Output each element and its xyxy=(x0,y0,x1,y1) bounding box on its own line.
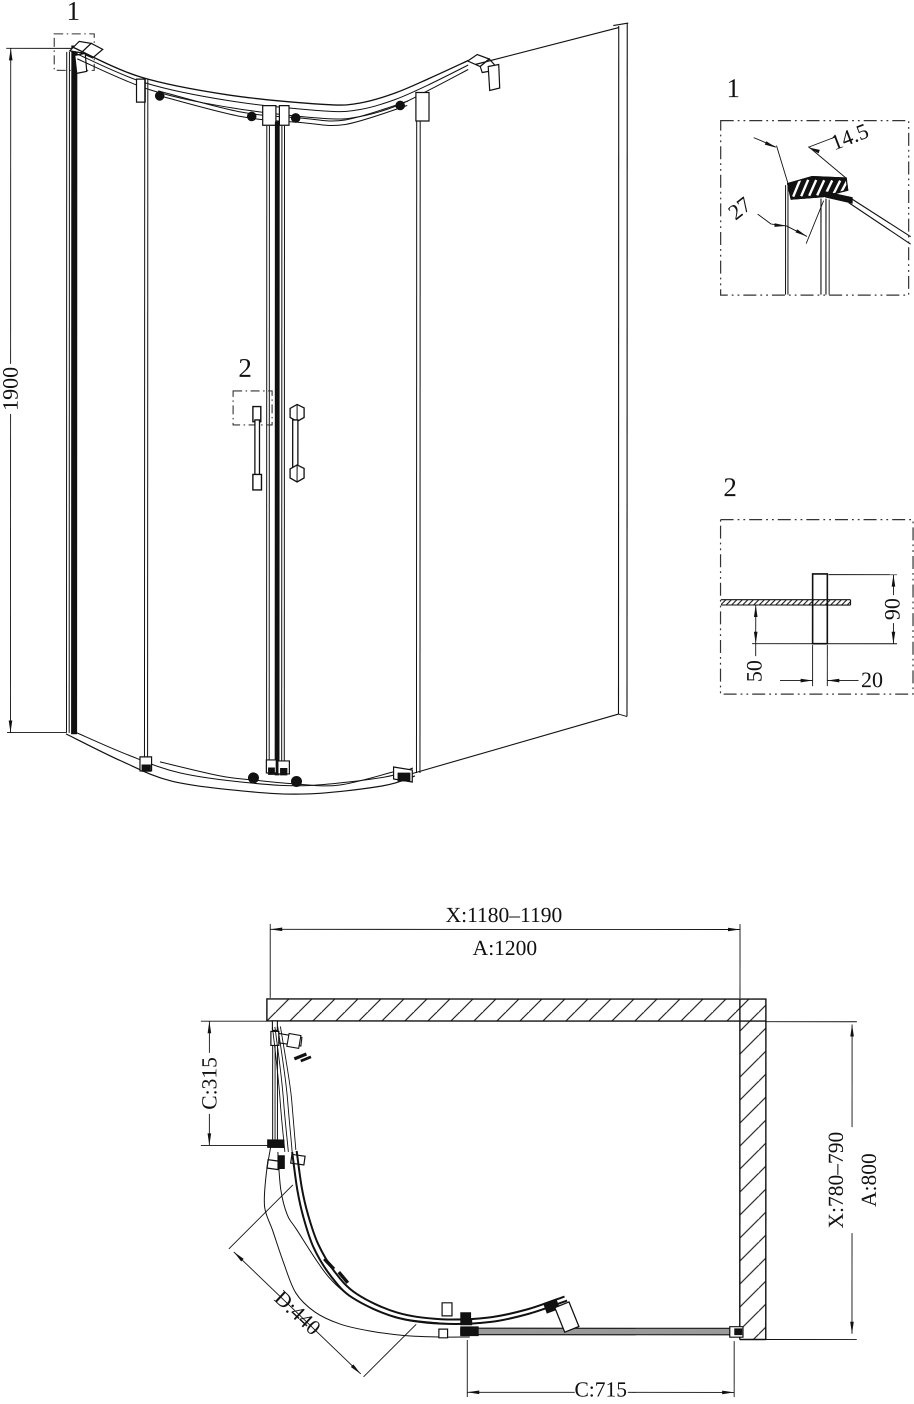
svg-text:50: 50 xyxy=(742,660,767,682)
svg-text:1: 1 xyxy=(726,73,740,103)
svg-text:A:800: A:800 xyxy=(857,1153,881,1207)
svg-text:X:780–790: X:780–790 xyxy=(824,1132,848,1229)
svg-text:20: 20 xyxy=(861,667,883,692)
svg-text:90: 90 xyxy=(880,598,905,620)
svg-text:A:1200: A:1200 xyxy=(473,936,538,960)
svg-text:2: 2 xyxy=(238,353,252,383)
svg-text:C:315: C:315 xyxy=(197,1057,221,1110)
svg-text:1: 1 xyxy=(66,0,80,26)
svg-text:C:715: C:715 xyxy=(574,1378,627,1402)
svg-text:X:1180–1190: X:1180–1190 xyxy=(446,903,563,927)
svg-text:1900: 1900 xyxy=(0,367,23,411)
svg-text:2: 2 xyxy=(723,472,737,502)
